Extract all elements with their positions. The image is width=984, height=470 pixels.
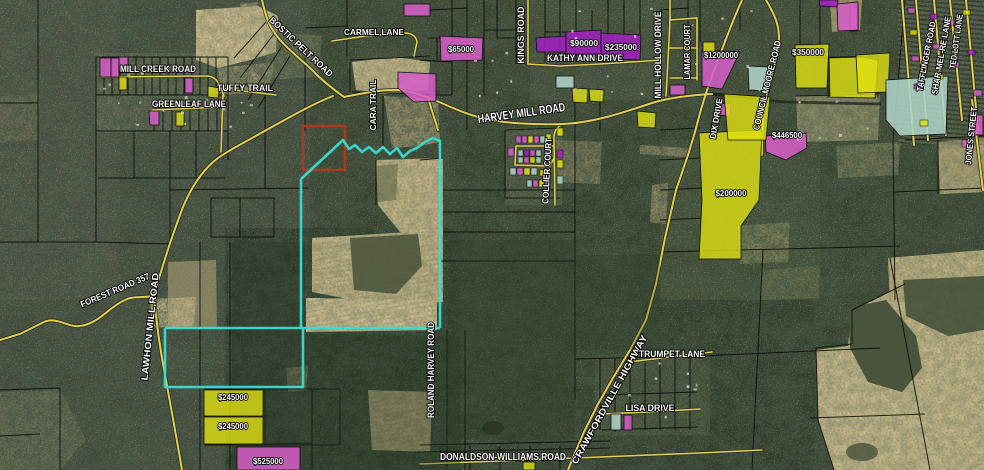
svg-text:TUFFY TRAIL: TUFFY TRAIL [217, 83, 273, 93]
svg-text:$65000: $65000 [448, 44, 474, 54]
svg-text:$245000: $245000 [218, 421, 248, 431]
svg-text:CARMEL LANE: CARMEL LANE [344, 27, 404, 37]
svg-text:$1200000: $1200000 [704, 50, 738, 60]
svg-text:$446500: $446500 [772, 130, 802, 140]
svg-text:KATHY ANN DRIVE: KATHY ANN DRIVE [547, 53, 623, 63]
svg-text:LAMAR COURT: LAMAR COURT [682, 24, 692, 80]
svg-text:CARA TRAIL: CARA TRAIL [368, 80, 378, 131]
svg-text:$245000: $245000 [218, 392, 248, 402]
svg-text:ROLAND HARVEY ROAD: ROLAND HARVEY ROAD [426, 322, 436, 418]
svg-text:$235000: $235000 [605, 42, 637, 52]
svg-text:TRUMPET LANE: TRUMPET LANE [639, 349, 705, 359]
svg-text:KINGS ROAD: KINGS ROAD [516, 6, 526, 63]
svg-text:DONALDSON-WILLIAMS ROAD: DONALDSON-WILLIAMS ROAD [440, 452, 566, 463]
svg-text:LISA DRIVE: LISA DRIVE [626, 403, 675, 413]
svg-text:$200000: $200000 [716, 188, 747, 198]
svg-text:MILL CREEK ROAD: MILL CREEK ROAD [120, 64, 196, 74]
svg-text:$350000: $350000 [792, 47, 824, 57]
svg-text:GREENLEAF LANE: GREENLEAF LANE [152, 99, 226, 109]
svg-text:$525000: $525000 [253, 456, 283, 466]
svg-text:MILL HOLLOW DRIVE: MILL HOLLOW DRIVE [653, 12, 663, 99]
svg-text:$90000: $90000 [570, 38, 598, 48]
